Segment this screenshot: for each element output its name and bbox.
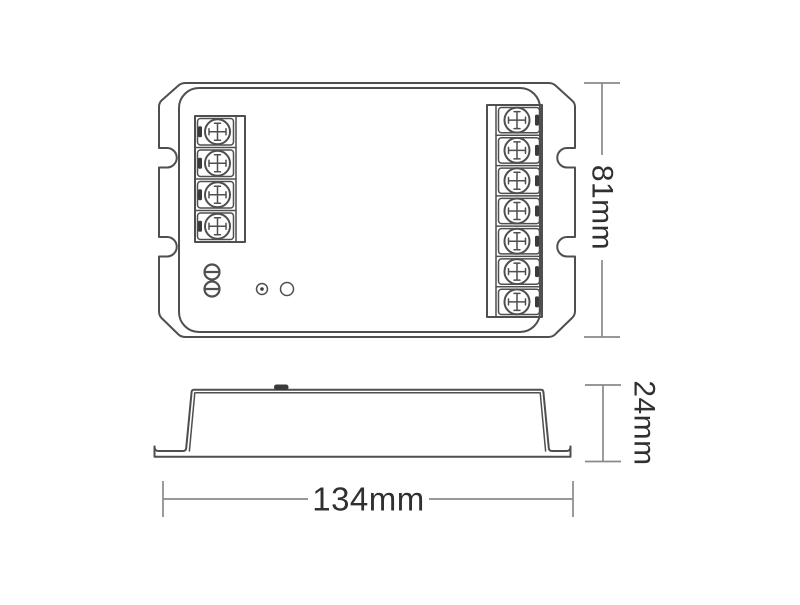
wire-slot-icon (198, 158, 202, 169)
height-dimension: 81mm (584, 83, 620, 337)
led-indicator-icon (257, 284, 268, 295)
terminal-screw-cell (499, 138, 540, 163)
top-bump (274, 385, 289, 391)
side-view (155, 385, 571, 457)
phillips-cross-icon (209, 218, 226, 235)
depth-dimension-label: 24mm (628, 380, 661, 465)
wire-slot-icon (535, 175, 539, 186)
terminal-screw-cell (499, 198, 540, 223)
terminal-screw-cell (198, 150, 234, 177)
wire-slot-icon (198, 221, 202, 232)
width-dimension: 134mm (163, 481, 573, 518)
adjustment-screws (205, 265, 220, 297)
phillips-cross-icon (509, 172, 526, 189)
phillips-cross-icon (209, 155, 226, 172)
terminal-screw-cell (499, 229, 540, 254)
terminal-screw-cell (499, 108, 540, 133)
phillips-cross-icon (509, 233, 526, 250)
phillips-cross-icon (509, 112, 526, 129)
diagram-canvas: 81mm 24mm 134mm (0, 0, 800, 600)
depth-dimension: 24mm (585, 380, 661, 465)
phillips-cross-icon (509, 142, 526, 159)
wire-slot-icon (535, 206, 539, 217)
phillips-cross-icon (509, 203, 526, 220)
wire-slot-icon (198, 126, 202, 137)
side-view-body (155, 390, 571, 451)
phillips-cross-icon (209, 123, 226, 140)
terminal-screw-cell (499, 168, 540, 193)
phillips-cross-icon (509, 293, 526, 310)
terminal-screw-cell (499, 289, 540, 314)
adjustment-screw-icon (205, 265, 220, 280)
terminal-screw-cell (198, 213, 234, 240)
wire-slot-icon (535, 296, 539, 307)
width-dimension-label: 134mm (312, 481, 425, 518)
right-terminal-block (487, 105, 542, 317)
phillips-cross-icon (209, 186, 226, 203)
side-view-inner-lines (189, 393, 545, 451)
wire-slot-icon (198, 189, 202, 200)
wire-slot-icon (535, 236, 539, 247)
button-circle-icon (281, 283, 294, 296)
phillips-cross-icon (509, 263, 526, 280)
wire-slot-icon (535, 266, 539, 277)
top-view (159, 83, 575, 337)
side-view-base (155, 447, 571, 457)
left-terminal-block (195, 116, 245, 242)
wire-slot-icon (535, 115, 539, 126)
terminal-screw-cell (198, 182, 234, 209)
terminal-screw-cell (198, 119, 234, 146)
dimension-diagram-svg: 81mm 24mm 134mm (0, 0, 800, 600)
adjustment-screw-icon (205, 282, 220, 297)
terminal-screw-cell (499, 259, 540, 284)
height-dimension-label: 81mm (586, 165, 619, 250)
wire-slot-icon (535, 145, 539, 156)
depth-dimension-lines (585, 385, 621, 462)
